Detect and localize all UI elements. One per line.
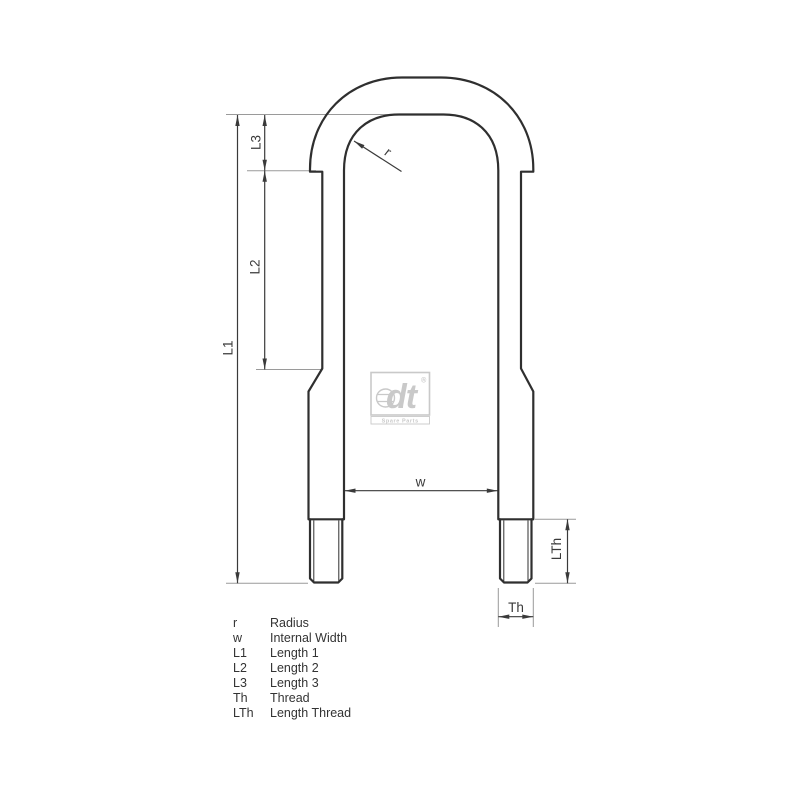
dimension-r: r <box>354 141 402 172</box>
legend-row: Th Thread <box>233 691 351 706</box>
dt-logo: dt ® Spare Parts <box>371 373 430 425</box>
legend-name: Length 2 <box>270 661 319 676</box>
arrowhead <box>565 519 569 530</box>
dimension-label-l3: L3 <box>249 135 264 150</box>
arrowhead <box>498 615 509 619</box>
dt-logo-text: dt <box>386 378 419 416</box>
dimension-label-r: r <box>382 145 395 160</box>
dimension-l1: L1 <box>221 115 240 583</box>
dimension-w: w <box>345 475 498 493</box>
arrowhead <box>235 115 239 126</box>
arrowhead <box>354 141 365 149</box>
dimension-lth: LTh <box>549 519 570 583</box>
legend-abbr: Th <box>233 691 270 706</box>
legend-abbr: L3 <box>233 676 270 691</box>
dimension-th: Th <box>498 600 533 619</box>
registered-trademark: ® <box>421 377 427 385</box>
legend-row: r Radius <box>233 616 351 631</box>
arrowhead <box>345 489 356 493</box>
legend-abbr: r <box>233 616 270 631</box>
legend-name: Length 3 <box>270 676 319 691</box>
arrowhead <box>235 572 239 583</box>
legend-row: w Internal Width <box>233 631 351 646</box>
u-bolt-technical-drawing: dt ® Spare Parts L1 L3 L2 <box>0 0 800 800</box>
legend-name: Length 1 <box>270 646 319 661</box>
legend-row: L2 Length 2 <box>233 661 351 676</box>
dimension-label-l1: L1 <box>221 340 236 355</box>
arrowhead <box>522 615 533 619</box>
legend-abbr: LTh <box>233 706 270 721</box>
bolt-outline <box>309 78 534 583</box>
legend-abbr: L1 <box>233 646 270 661</box>
legend-row: LTh Length Thread <box>233 706 351 721</box>
arrowhead <box>263 160 267 171</box>
legend-name: Thread <box>270 691 310 706</box>
legend-abbr: w <box>233 631 270 646</box>
dt-logo-subtext: Spare Parts <box>382 419 419 425</box>
arrowhead <box>487 489 498 493</box>
legend-row: L1 Length 1 <box>233 646 351 661</box>
dimension-label-l2: L2 <box>248 259 263 274</box>
legend-name: Length Thread <box>270 706 351 721</box>
extension-lines <box>226 115 576 628</box>
arrowhead <box>263 115 267 126</box>
dimension-label-lth: LTh <box>549 538 564 560</box>
legend-row: L3 Length 3 <box>233 676 351 691</box>
legend-name: Radius <box>270 616 309 631</box>
legend-abbr: L2 <box>233 661 270 676</box>
dimension-l3: L3 <box>249 115 267 171</box>
legend: r Radius w Internal Width L1 Length 1 L2… <box>233 616 351 721</box>
arrowhead <box>263 171 267 182</box>
dimension-label-th: Th <box>508 600 524 615</box>
dimension-l2: L2 <box>248 171 267 370</box>
arrowhead <box>565 572 569 583</box>
arrowhead <box>263 359 267 370</box>
dimension-label-w: w <box>415 475 426 490</box>
legend-name: Internal Width <box>270 631 347 646</box>
